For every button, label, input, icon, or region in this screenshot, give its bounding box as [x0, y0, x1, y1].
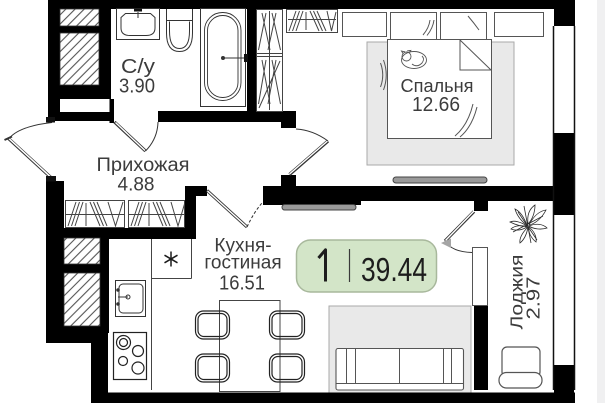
svg-text:гостиная: гостиная	[204, 253, 281, 274]
svg-text:16.51: 16.51	[219, 273, 265, 295]
svg-text:3.90: 3.90	[119, 76, 155, 98]
svg-text:12.66: 12.66	[412, 94, 460, 116]
svg-text:Спальня: Спальня	[401, 76, 474, 96]
svg-text:2.97: 2.97	[524, 277, 544, 320]
svg-text:4.88: 4.88	[118, 175, 155, 196]
svg-text:Прихожая: Прихожая	[97, 155, 190, 176]
svg-text:39.44: 39.44	[361, 251, 427, 288]
